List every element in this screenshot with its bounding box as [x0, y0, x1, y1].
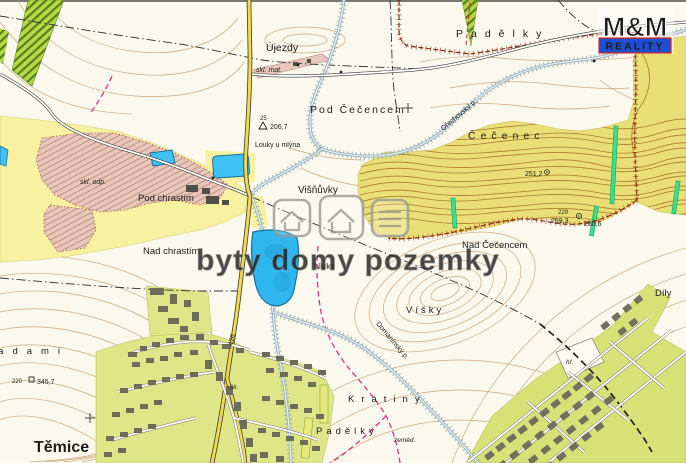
label-zemed: zeměd. [393, 437, 416, 444]
elevation-point-dot [546, 171, 548, 173]
label-pod-chrastim: Pod chrastím [138, 193, 194, 204]
point-dot [340, 71, 343, 74]
elev-25: 25 [260, 116, 267, 122]
label-nad-chrastim: Nad chrastím [143, 246, 200, 257]
label-pod-cecencem: Pod Čečencem [310, 103, 406, 116]
label-hriste: hř. [566, 359, 574, 366]
label-skl-mat: skl. mat. [256, 67, 282, 74]
label-padelky-bottom: Padělky [316, 426, 378, 437]
label-visky: Víšky [406, 305, 444, 316]
label-skola: šk. [230, 384, 239, 391]
label-cecenec: Čečenec [468, 129, 544, 142]
label-ujezdy: Újezdy [266, 41, 299, 54]
watermark-text: byty domy pozemky [196, 244, 500, 277]
point-dot [593, 60, 596, 63]
map-canvas: Újezdy Padělky Pod Čečencem Čečenec Višň… [0, 0, 686, 463]
label-temice: Těmice [34, 439, 89, 456]
label-louky-u-mlyna: Louky u mlýna [255, 142, 300, 149]
topographic-map: Újezdy Padělky Pod Čečencem Čečenec Višň… [0, 0, 686, 463]
label-radami-partial: radami [0, 346, 69, 357]
label-visnuvky: Višňůvky [298, 184, 338, 196]
label-kratiny: Krátiny [348, 394, 427, 405]
point-dot [212, 177, 215, 180]
watermark-icons [274, 196, 408, 239]
mm-reality-logo: M&M REALITY [597, 9, 674, 54]
elev-260-6: 260,6 [584, 221, 602, 228]
elev-229: 229 [558, 210, 569, 216]
elev-345-7: 345,7 [37, 379, 55, 386]
elev-220: 220 [12, 379, 23, 385]
elev-206-7: 206,7 [270, 124, 288, 131]
label-dily: Díly [655, 288, 672, 299]
logo-reality-text: REALITY [606, 41, 665, 53]
elevation-point-dot [578, 215, 580, 217]
label-skl-odp: skl. odp. [80, 179, 106, 186]
elev-259-3: 259,3 [551, 218, 569, 225]
elev-251-2: 251,2 [525, 171, 543, 178]
label-padelky-top: Padělky [456, 28, 549, 40]
point-dot [297, 64, 300, 67]
